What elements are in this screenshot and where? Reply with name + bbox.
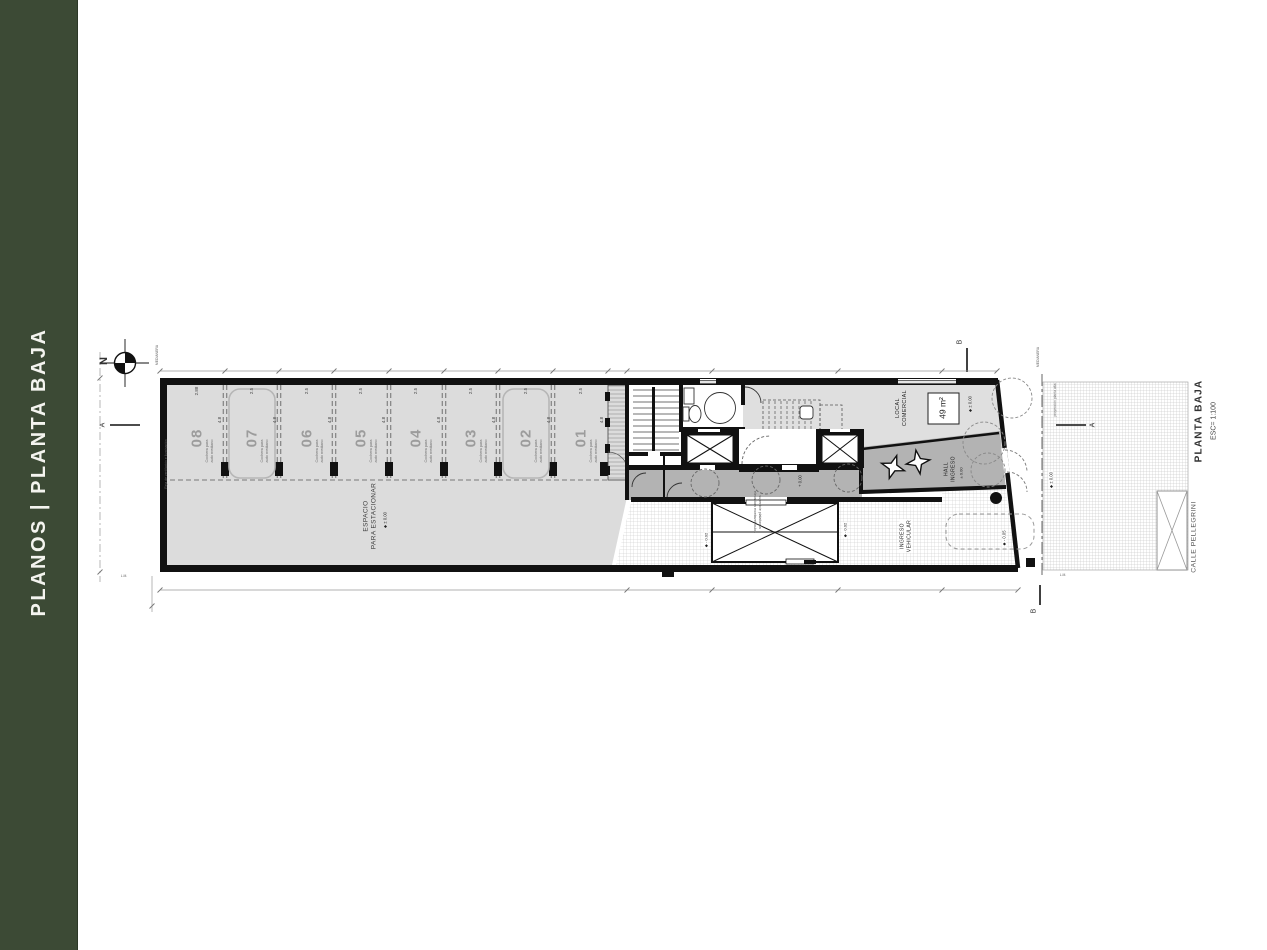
stall-number: 04 — [406, 429, 426, 448]
stall-depth-dim: 4.8 — [436, 417, 442, 423]
stall-note: Cochera para auto mediano — [479, 439, 489, 462]
car-lift-platform — [712, 500, 838, 564]
stall-number: 05 — [351, 429, 371, 448]
sidebar: PLANOS | PLANTA BAJA — [0, 0, 78, 950]
stall-note: Cochera para auto mediano — [424, 439, 434, 462]
stall-depth-dim: 4.8 — [546, 417, 552, 423]
elevator-1 — [681, 429, 739, 468]
hall-label: HALL INGRESO — [944, 456, 957, 482]
stall-note: Cochera para auto mediano — [589, 439, 599, 462]
stall-number: 02 — [516, 429, 536, 448]
stall-number: 03 — [461, 429, 481, 448]
lm-annotation-left: L.M. — [121, 574, 128, 578]
driveway-hatch — [942, 485, 1017, 565]
stall-note: Cochera para auto mediano — [315, 439, 325, 462]
stall-number: 06 — [297, 429, 317, 448]
section-marker-a-left: A — [98, 423, 107, 428]
stall-width-dim: 2.5 — [249, 388, 255, 394]
sidewalk-level: ◆ ± 0.00 — [1048, 471, 1053, 489]
street-label: CALLE PELLEGRINI — [1191, 501, 1200, 572]
stair-main — [633, 387, 679, 451]
vehicle-entry-label: INGRESO VEHICULAR — [900, 519, 913, 553]
corridor-level: + 0.00 — [797, 475, 802, 487]
stall-number: 07 — [242, 429, 262, 448]
platform-level-left: ◆ - 0.02 — [703, 532, 708, 548]
stall-width-dim: 2.5 — [468, 388, 474, 394]
medianera-annotation-left: MEDIANERA — [155, 345, 159, 365]
elevator-2 — [816, 429, 864, 468]
local-comercial-area: 49 m² — [937, 397, 948, 419]
local-comercial-label: LOCAL COMERCIAL — [895, 390, 909, 426]
stall-number: 08 — [187, 429, 207, 448]
parking-floor — [167, 385, 627, 565]
stall-note: Cochera para auto mediano — [205, 439, 215, 462]
platform-note: superficie plataforma elevadora montaveh… — [752, 491, 762, 533]
stall-width-dim: 2.5 — [578, 388, 584, 394]
plan-scale: ESC= 1:100 — [1209, 402, 1218, 440]
parking-level-marker: ◆ ± 0.00 — [382, 512, 387, 528]
floor-plan-drawing — [0, 0, 1267, 950]
stall-depth-dim: 4.8 — [599, 417, 605, 423]
vent-grate-label: Reja de ventilación e iluminación — [164, 439, 168, 488]
section-marker-b-top: B — [955, 340, 964, 345]
stall-width-dim: 2.5 — [304, 388, 310, 394]
stall-note: Cochera para auto mediano — [534, 439, 544, 462]
medianera-annotation-right: MEDIANERA — [1036, 347, 1040, 367]
local-comercial-level: ◆ ± 0.00 — [967, 396, 972, 412]
lm-annotation-right: L.M. — [1060, 573, 1067, 577]
stall-width-dim: 2.5 — [413, 388, 419, 394]
parking-area-label: ESPACIO PARA ESTACIONAR — [363, 483, 380, 549]
stall-width-dim: 2.5 — [523, 388, 529, 394]
section-marker-a-right: A — [1088, 423, 1097, 428]
stall-depth-dim: 4.8 — [327, 417, 333, 423]
vent-grate — [605, 385, 628, 480]
stall-depth-dim: 4.8 — [491, 417, 497, 423]
stall-number: 01 — [571, 429, 591, 448]
stall-note: Cochera para auto mediano — [260, 439, 270, 462]
stall-note: Cochera para auto mediano — [369, 439, 379, 462]
tree-grate — [1157, 491, 1187, 570]
wall-bottom — [160, 565, 1018, 572]
projection-annotation: proyección planta alta — [1053, 384, 1057, 417]
stall-width-dim: 2.5 — [358, 388, 364, 394]
sidebar-title: PLANOS | PLANTA BAJA — [26, 328, 52, 617]
stall-depth-dim: 4.8 — [272, 417, 278, 423]
corridor-floor — [627, 470, 862, 500]
platform-level-right: ◆ - 0.02 — [842, 522, 847, 538]
stall-width-dim: 2.88 — [194, 387, 200, 396]
wall-top — [160, 378, 998, 385]
page: PLANOS | PLANTA BAJA N A A B B 08 2.88 C… — [0, 0, 1267, 950]
plan-title: PLANTA BAJA — [1193, 380, 1206, 463]
stall-depth-dim: 4.8 — [217, 417, 223, 423]
section-marker-b-bottom: B — [1029, 609, 1038, 614]
hall-level: ± 0.00 — [958, 467, 963, 478]
stall-depth-dim: 4.8 — [381, 417, 387, 423]
north-label: N — [97, 357, 111, 365]
vehicle-entry-level: ◆ - 0.05 — [1001, 529, 1006, 546]
